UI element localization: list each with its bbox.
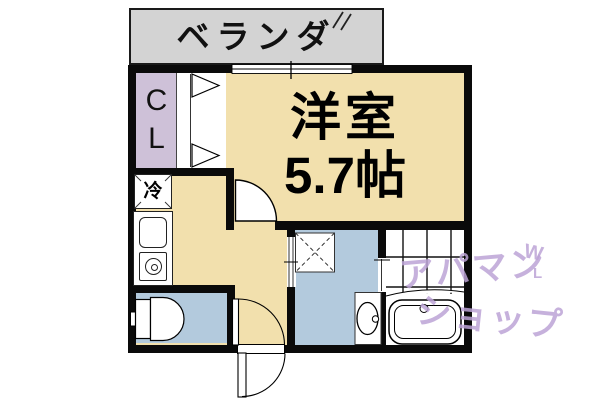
toilet-door bbox=[233, 299, 285, 345]
entrance-door-arc bbox=[242, 354, 285, 397]
watermark-w-mark: W bbox=[522, 241, 545, 264]
closet-label: CL bbox=[141, 84, 171, 160]
toilet-bowl bbox=[151, 298, 185, 341]
main-room-name: 洋室 bbox=[290, 91, 400, 145]
washbasin-faucet-icon bbox=[372, 316, 378, 322]
watermark-l-mark: L bbox=[533, 266, 542, 281]
toilet-tank bbox=[136, 300, 151, 339]
balcony-tick-icon bbox=[333, 12, 351, 30]
bathroom-door-icon bbox=[374, 259, 390, 291]
toilet-handle bbox=[131, 312, 136, 326]
entrance-door bbox=[238, 353, 285, 397]
main-room-label: 洋室 5.7帖 bbox=[226, 76, 464, 218]
toilet-fixture bbox=[131, 298, 185, 341]
floor-plan: ベランダ 冷 bbox=[0, 0, 600, 400]
refrigerator-corner-ticks bbox=[135, 175, 171, 208]
closet-door-icon bbox=[191, 74, 220, 167]
toilet-door-arc bbox=[239, 299, 285, 345]
washing-machine-space bbox=[296, 233, 335, 272]
washbasin bbox=[355, 293, 381, 345]
main-room-size: 5.7帖 bbox=[284, 149, 406, 203]
